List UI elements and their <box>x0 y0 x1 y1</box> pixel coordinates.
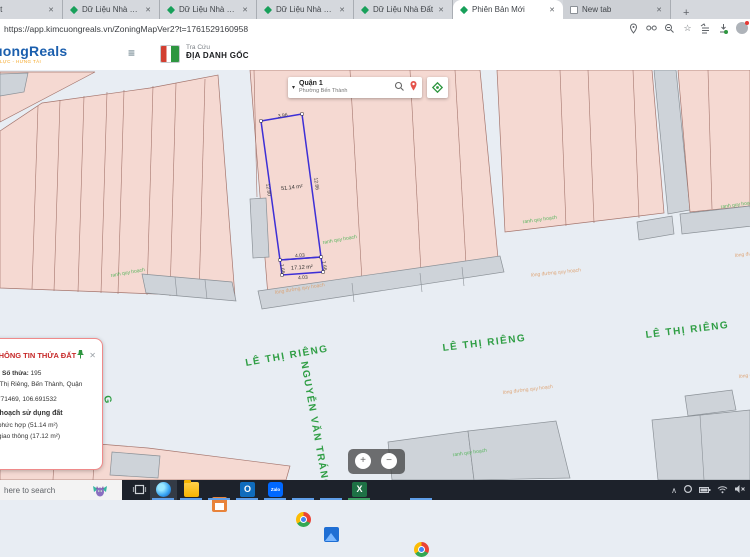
tab-close-icon[interactable]: ✕ <box>548 6 556 14</box>
taskbar-search-text: here to search <box>4 486 55 495</box>
long-duong-label: lòng đường quy hoạch <box>531 267 582 278</box>
search-highlight-creature-icon[interactable] <box>92 482 107 497</box>
map-zoom-controls: + − <box>348 449 405 474</box>
parcel-block[interactable] <box>110 452 160 478</box>
landuse-item-1: Đất phức hợp (51.14 m²) <box>0 422 94 429</box>
map-search-box[interactable]: ▾ Quận 1 Phường Bến Thành <box>288 77 422 98</box>
tab-phien-ban-moi-active[interactable]: Phiên Bản Mới ✕ <box>453 0 563 19</box>
parcel-address: 70, Lê Thị Riêng, Bến Thành, Quận <box>0 381 94 388</box>
long-duong-label: lòng đường quy hoạch <box>735 247 750 259</box>
site-favicon-diamond-icon <box>361 6 369 14</box>
pushpin-icon[interactable] <box>76 346 85 364</box>
tab-du-lieu-2[interactable]: Dữ Liệu Nhà Đất ✕ <box>160 0 257 19</box>
tab-new-tab[interactable]: New tab ✕ <box>563 0 671 19</box>
parcel-number-line: Số thửa: 195 <box>0 370 94 377</box>
logo-tagline: LỰC - HƯNG TÀI <box>0 59 41 64</box>
app-header: uongReals LỰC - HƯNG TÀI ≡ Tra Cứu ĐỊA D… <box>0 40 750 70</box>
excel-icon[interactable]: X <box>352 482 367 497</box>
tab-label: New tab <box>582 5 651 14</box>
locate-target-button[interactable] <box>427 77 448 98</box>
tray-ring-icon[interactable] <box>683 481 693 499</box>
landuse-section-title: Quy hoạch sử dụng đất <box>0 410 94 417</box>
tab-label: Phiên Bản Mới <box>472 5 544 14</box>
windows-taskbar: here to search O Zalo X ∧ <box>0 480 750 500</box>
lookup-block[interactable]: Tra Cứu ĐỊA DANH GỐC <box>186 44 249 60</box>
site-favicon-diamond-icon <box>460 6 468 14</box>
tab-label: Dữ Liệu Nhà Đất <box>276 5 334 14</box>
tray-chevron-up-icon[interactable]: ∧ <box>671 486 677 495</box>
collections-icon[interactable] <box>700 23 711 34</box>
tab-label: Dữ Liệu Nhà Đất <box>82 5 140 14</box>
map-pin-icon[interactable] <box>409 79 418 97</box>
new-tab-button[interactable]: + <box>679 7 693 19</box>
building-block[interactable] <box>652 410 750 480</box>
chrome-icon[interactable] <box>296 512 311 527</box>
battery-icon[interactable] <box>699 481 711 499</box>
zoom-out-icon[interactable] <box>664 23 675 34</box>
tab-close-icon[interactable]: ✕ <box>338 6 346 14</box>
profile-avatar[interactable] <box>736 22 748 34</box>
chevron-down-icon[interactable]: ▾ <box>292 84 295 91</box>
chrome-icon-2[interactable] <box>414 542 429 557</box>
tab-close-icon[interactable]: ✕ <box>241 6 249 14</box>
file-explorer-icon[interactable] <box>184 482 199 497</box>
tab-label: Dữ Liệu Nhà Đất <box>179 5 237 14</box>
target-diamond-icon <box>431 81 444 94</box>
landuse-item-2: Đất giao thông (17.12 m²) <box>0 433 94 440</box>
dim-label-bottom: 4.03 <box>298 275 308 282</box>
tab-du-lieu-1[interactable]: Dữ Liệu Nhà Đất ✕ <box>63 0 160 19</box>
site-favicon-diamond-icon <box>264 6 272 14</box>
tab-label: Nhà Đất <box>0 5 43 14</box>
tab-close-icon[interactable]: ✕ <box>144 6 152 14</box>
edge-browser-icon[interactable] <box>156 482 171 497</box>
wifi-icon[interactable] <box>717 481 728 499</box>
tab-label: Dữ Liệu Nhà Đất <box>373 5 433 14</box>
zoom-out-button[interactable]: − <box>381 453 397 469</box>
site-favicon-diamond-icon <box>70 6 78 14</box>
lookup-booklet-icon <box>160 45 180 63</box>
hamburger-menu-icon[interactable]: ≡ <box>128 46 135 60</box>
photos-icon[interactable] <box>324 527 339 542</box>
map-svg[interactable]: 3.96 12.80 12.86 51.14 m² 4.03 17.12 m² … <box>0 70 750 480</box>
speaker-muted-icon[interactable] <box>734 481 746 499</box>
outlook-icon[interactable]: O <box>240 482 255 497</box>
district-value: Quận 1 <box>299 80 390 88</box>
street-label-le-thi-rieng: LÊ THỊ RIÊNG <box>244 342 329 369</box>
address-bar[interactable]: https://app.kimcuongreals.vn/ZoningMapVe… <box>0 19 750 41</box>
parcel-coordinates: 10.771469, 106.691532 <box>0 396 94 403</box>
zoning-map-canvas[interactable]: 3.96 12.80 12.86 51.14 m² 4.03 17.12 m² … <box>0 70 750 480</box>
site-favicon-diamond-icon <box>167 6 175 14</box>
close-icon[interactable]: ✕ <box>89 351 96 360</box>
tab-nha-dat[interactable]: Nhà Đất ✕ <box>0 0 63 19</box>
zoom-in-button[interactable]: + <box>355 453 371 469</box>
system-tray: ∧ <box>671 480 746 500</box>
long-duong-label: lòng đường quy hoạch <box>739 368 750 380</box>
page-favicon-icon <box>570 6 578 14</box>
downloads-icon[interactable] <box>718 23 729 34</box>
tab-du-lieu-3[interactable]: Dữ Liệu Nhà Đất ✕ <box>257 0 354 19</box>
dim-label-inner: 4.03 <box>295 253 305 260</box>
tab-close-icon[interactable]: ✕ <box>437 6 445 14</box>
lookup-label: Tra Cứu <box>186 44 249 51</box>
tab-du-lieu-4[interactable]: Dữ Liệu Nhà Đất ✕ <box>354 0 453 19</box>
street-label-le-thi-rieng: LÊ THỊ RIÊNG <box>442 331 527 354</box>
url-text[interactable]: https://app.kimcuongreals.vn/ZoningMapVe… <box>4 24 248 34</box>
location-pin-icon[interactable] <box>628 23 639 34</box>
favorite-star-icon[interactable]: ☆ <box>682 23 693 34</box>
tab-close-icon[interactable]: ✕ <box>47 6 55 14</box>
street-label-nguyen-van-trang: NGUYỄN VĂN TRÁNG <box>298 360 333 480</box>
neighbor-parcel[interactable] <box>250 198 269 258</box>
zalo-icon[interactable]: Zalo <box>268 482 283 497</box>
reader-glasses-icon[interactable] <box>646 23 657 34</box>
app-logo: uongReals <box>0 43 67 59</box>
search-icon[interactable] <box>394 79 405 97</box>
parcel-block[interactable] <box>497 70 664 232</box>
lookup-title: ĐỊA DANH GỐC <box>186 51 249 60</box>
browser-tab-strip: Nhà Đất ✕ Dữ Liệu Nhà Đất ✕ Dữ Liệu Nhà … <box>0 0 750 19</box>
street-label-le-thi-rieng: LÊ THỊ RIÊNG <box>645 318 730 341</box>
road-strip[interactable] <box>637 216 674 240</box>
panel-title: THÔNG TIN THỬA ĐẤT <box>0 351 76 360</box>
parcel-block[interactable] <box>678 70 750 212</box>
ward-value: Phường Bến Thành <box>299 88 390 94</box>
task-view-icon[interactable] <box>132 482 147 497</box>
tab-close-icon[interactable]: ✕ <box>655 6 663 14</box>
long-duong-label: lòng đường quy hoạch <box>503 384 554 396</box>
parcel-info-panel: THÔNG TIN THỬA ĐẤT ✕ Số thửa: 195 70, Lê… <box>0 338 103 470</box>
